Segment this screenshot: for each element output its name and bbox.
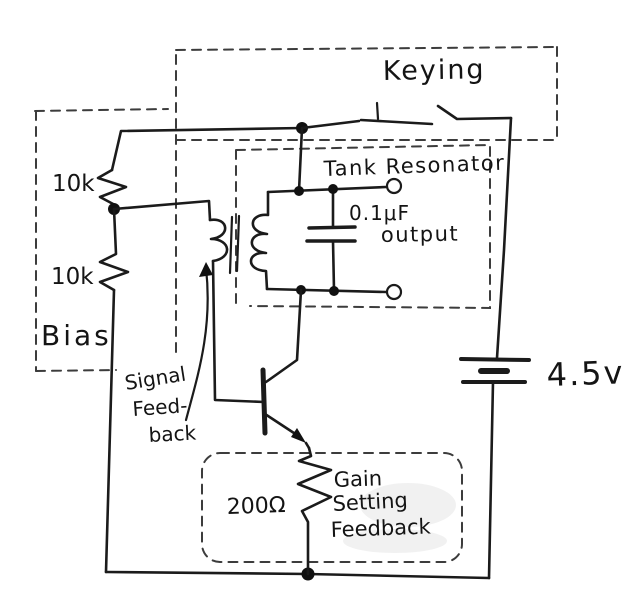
resistor-10k-upper [98, 170, 126, 205]
keying-switch [302, 103, 511, 128]
signal-feedback-arrow [186, 262, 213, 420]
battery-symbol [461, 359, 529, 578]
junction-dot [294, 186, 304, 196]
inductor-secondary [251, 192, 268, 289]
oscillator-schematic: Keying Tank Resonator 0.1μF output 10k 1… [0, 0, 640, 613]
wire-bias-to-primary [114, 201, 210, 220]
output-terminal-top [387, 179, 401, 193]
tank-top-rail [268, 187, 386, 192]
junction-dot [328, 184, 338, 194]
output-terminal-bottom [387, 285, 401, 299]
junction-dot [329, 286, 339, 296]
gain-label-line2: Setting [332, 488, 408, 516]
battery-voltage-label: 4.5v [546, 353, 625, 394]
keying-label: Keying [383, 54, 486, 87]
emitter-arrowhead [291, 428, 306, 443]
schematic-page: Keying Tank Resonator 0.1μF output 10k 1… [0, 0, 640, 613]
gain-label-line3: Feedback [330, 514, 432, 542]
wire-primary-to-base [213, 261, 264, 402]
resistor-10k-lower [100, 209, 128, 290]
resistor-10k-upper-label: 10k [52, 171, 95, 197]
signal-feedback-label-line1: Signal [123, 362, 187, 395]
resistor-10k-lower-label: 10k [51, 264, 94, 290]
bias-label: Bias [41, 319, 112, 352]
capacitor [307, 189, 355, 290]
output-label: output [381, 222, 460, 247]
wire-bottom-rail [106, 572, 489, 578]
capacitor-value-label: 0.1μF [349, 201, 410, 225]
tank-resonator-label: Tank Resonator [322, 151, 505, 181]
wire-keying-to-tank [299, 128, 302, 191]
resistor-200 [298, 448, 331, 574]
resistor-200-label: 200Ω [226, 493, 286, 520]
inductor-primary [210, 220, 227, 261]
transformer-core [230, 216, 239, 273]
signal-feedback-label-line3: back [148, 421, 197, 447]
transistor [263, 290, 309, 448]
signal-feedback-label-line2: Feed- [132, 393, 188, 421]
gain-label-line1: Gain [333, 466, 382, 492]
tank-bottom-rail [267, 289, 386, 292]
